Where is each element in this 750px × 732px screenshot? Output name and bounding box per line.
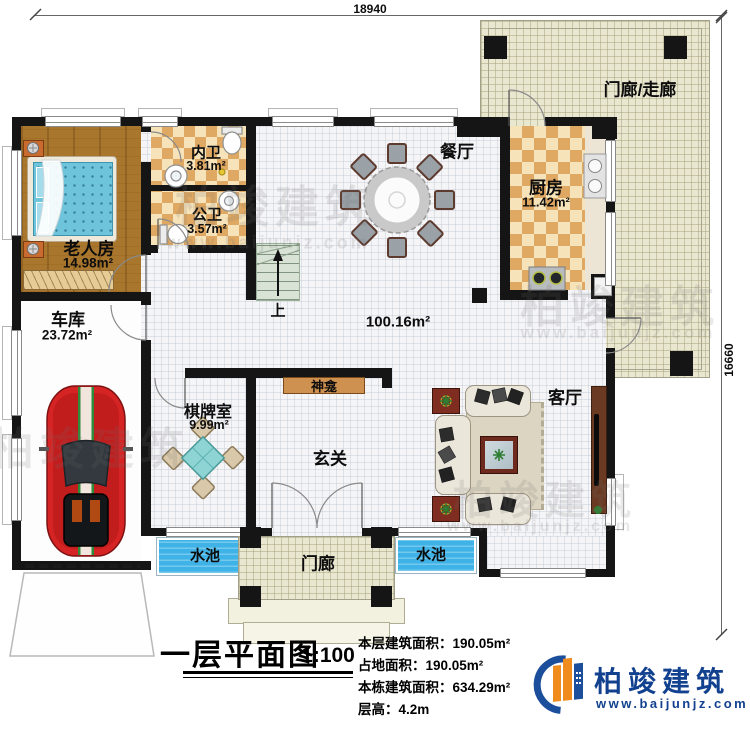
stat-floor-area: 本层建筑面积：190.05m²	[358, 633, 510, 655]
wall-bed-bath-b	[141, 162, 151, 255]
room-area-elder-bedroom: 14.98m²	[63, 256, 113, 271]
stats-block: 本层建筑面积：190.05m² 占地面积：190.05m² 本栋建筑面积：634…	[358, 633, 510, 721]
dimension-top-value: 18940	[353, 2, 386, 16]
wardrobe	[23, 270, 114, 290]
page-title: 一层平面图	[160, 630, 320, 674]
wall-dining-stub	[457, 126, 502, 137]
shrine-shelf: 神龛	[283, 377, 365, 394]
living-bay-floor	[487, 536, 606, 569]
logo-website: www.baijunjz.com	[596, 696, 748, 711]
column-front-porch	[240, 586, 261, 607]
room-label-porch-corridor: 门廊/走廊	[604, 76, 677, 101]
floor-plan: 18940 16660	[0, 0, 750, 732]
bed-pillow	[36, 167, 49, 198]
title-underline-2	[183, 677, 353, 678]
wall-right-b	[606, 348, 615, 577]
window	[11, 150, 22, 236]
shrine-label: 神龛	[311, 376, 337, 395]
room-label-dining: 餐厅	[440, 138, 474, 163]
end-table	[432, 388, 460, 414]
column-porch	[670, 351, 693, 376]
page-scale: 1:100	[301, 644, 355, 668]
pool-left-label: 水池	[190, 545, 220, 566]
kitchen-counter-floor	[585, 126, 606, 290]
stat-total-area: 本栋建筑面积：634.29m²	[358, 677, 510, 699]
wall-kitchen-left	[500, 126, 510, 300]
wall-shrine-stub	[382, 368, 392, 388]
watermark-text: 柏竣建筑	[0, 413, 190, 477]
window	[142, 116, 178, 127]
wall-top-b	[545, 117, 592, 126]
wall-garage-bottom	[12, 561, 151, 570]
window	[166, 527, 248, 537]
stat-storey-height: 层高：4.2m	[358, 699, 510, 721]
window	[605, 140, 616, 202]
pool-right-label: 水池	[416, 544, 446, 565]
stat-land-area: 占地面积：190.05m²	[358, 655, 510, 677]
window	[374, 116, 454, 127]
room-label-foyer: 玄关	[313, 445, 347, 470]
coffee-table-glass	[485, 441, 513, 469]
window	[500, 568, 586, 578]
title-underline	[183, 671, 353, 674]
column-front-porch	[240, 527, 261, 548]
sofa-top	[465, 385, 531, 417]
stairs-up-label: 上	[270, 300, 285, 321]
wall-bath-bottom-a	[151, 245, 158, 253]
bed-pillow	[36, 202, 49, 233]
wall-bedroom-bottom	[12, 292, 151, 301]
window	[11, 330, 22, 416]
column-front-porch	[371, 527, 392, 548]
column-porch	[484, 36, 507, 59]
nightstand	[23, 241, 44, 258]
room-area-garage: 23.72m²	[42, 328, 92, 343]
watermark-url: www.baijunjz.com	[521, 323, 716, 343]
window	[272, 116, 334, 127]
logo-name: 柏竣建筑	[594, 660, 730, 700]
column-porch	[664, 36, 687, 59]
watermark-text: 柏竣建筑	[175, 171, 375, 235]
watermark-url: www.baijunjz.com	[166, 233, 369, 254]
dimension-right-value: 16660	[722, 343, 736, 376]
hall-area-value: 100.16m²	[366, 314, 430, 331]
room-area-kitchen: 11.42m²	[522, 195, 570, 210]
room-area-chess: 9.99m²	[189, 418, 229, 432]
column-hall	[472, 288, 487, 303]
room-label-front-porch: 门廊	[301, 550, 335, 575]
room-label-living: 客厅	[548, 384, 582, 409]
watermark-url: www.baijunjz.com	[447, 518, 633, 536]
logo-icon	[533, 650, 591, 716]
column-front-porch	[371, 586, 392, 607]
window	[45, 116, 121, 127]
wall-chess-right	[246, 378, 256, 528]
nightstand	[23, 140, 44, 157]
